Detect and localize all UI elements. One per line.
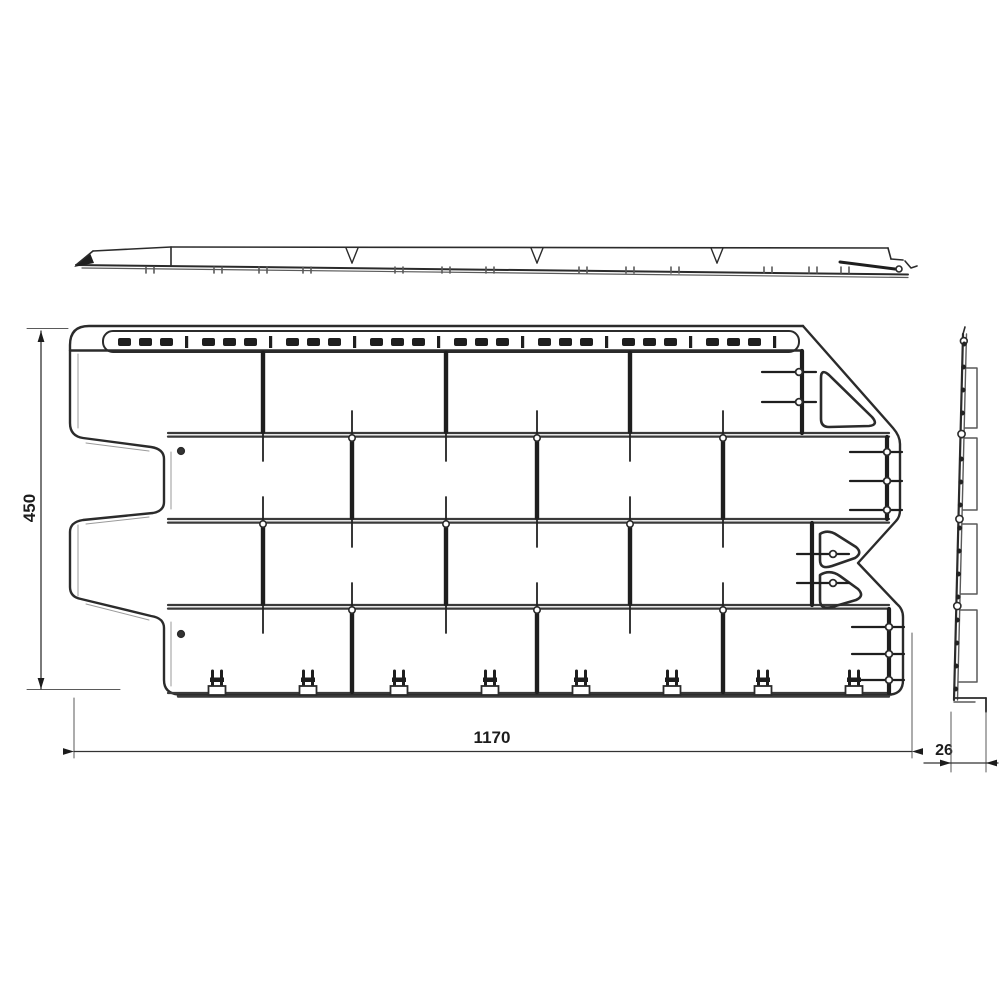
width-dimension-label: 1170 — [474, 728, 511, 747]
side-view — [954, 327, 986, 712]
drawing-stage: 1170 450 26 — [0, 0, 1000, 1000]
thickness-dimension-label: 26 — [935, 742, 953, 759]
facade-panel-drawing: 1170 450 26 — [0, 0, 1000, 1000]
thickness-dimension: 26 — [924, 712, 998, 772]
height-dimension-label: 450 — [20, 494, 39, 522]
front-view — [70, 326, 904, 697]
top-view — [74, 247, 917, 278]
